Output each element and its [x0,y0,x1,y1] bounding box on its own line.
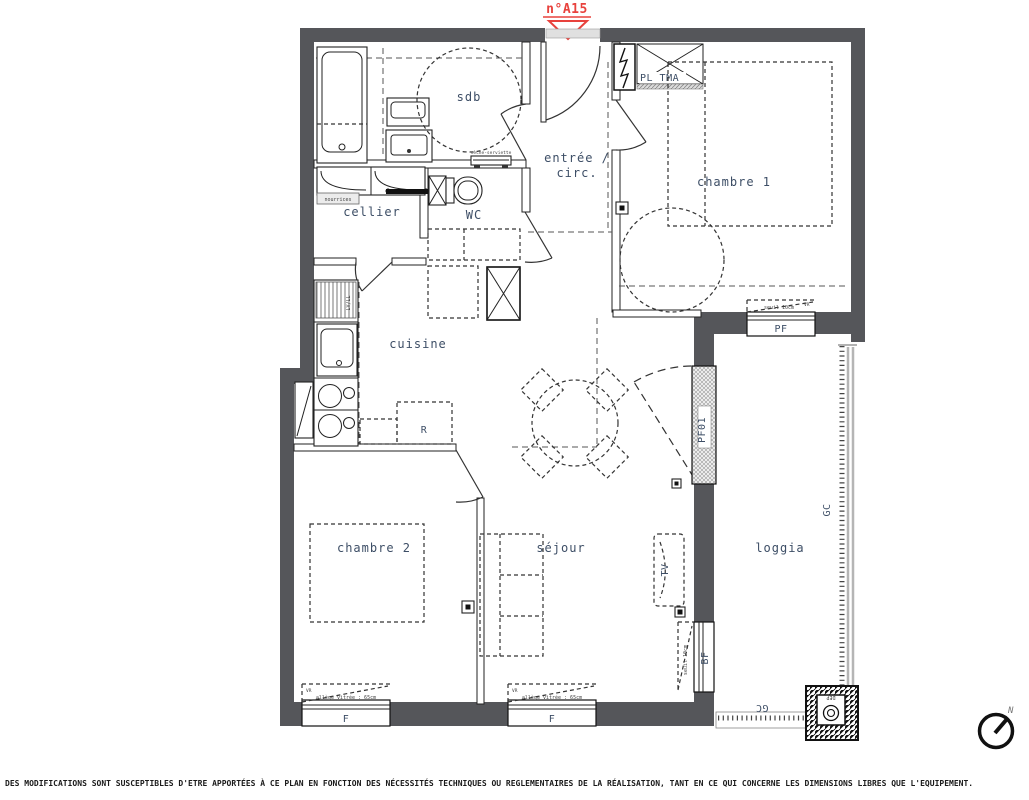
window-f1-label: F [343,714,350,725]
allege-f2-label: allège vitrée : 65cm [522,694,582,701]
outer-walls [280,28,865,726]
room-label-wc: WC [466,208,482,222]
disclaimer-text: DES MODIFICATIONS SONT SUSCEPTIBLES D'ET… [5,756,1025,800]
room-label-cellier: cellier [343,205,401,219]
water-heater [295,382,313,438]
duct-shaft [487,267,520,320]
towel-radiator: sèche-serviette [471,149,512,168]
seche-serviette-label: sèche-serviette [471,149,512,156]
vr-f1-label: VR [306,688,312,694]
sofa [480,534,543,656]
bf-label: BF [700,651,711,664]
seuil-bf-label: seuil 10cm [683,645,689,675]
window-f2-label: F [549,714,556,725]
allege-f1-label: allège vitrée : 65cm [316,694,376,701]
gc-bottom-label: GC [755,702,768,713]
refrigerator-label: R [421,425,428,436]
dep-label: DEP [826,694,835,700]
compass: N [980,706,1015,748]
bathtub [317,47,367,163]
room-label-entree-1: entrée / [544,151,610,165]
bathroom-fixtures: sèche-serviette [317,47,521,168]
compass-north-label: N [1007,706,1014,716]
seuil-pf-label: seuil 10cm [764,305,794,311]
compass-needle-icon [995,719,1007,733]
floorplan-svg: n°A15 [0,0,1029,755]
room-label-sejour: séjour [536,541,585,555]
room-label-chambre2: chambre 2 [337,541,411,555]
vr-f2-label: VR [512,688,518,694]
gc-right-label: GC [822,503,833,516]
dep-box: DEP [806,686,858,740]
room-label-cuisine: cuisine [389,337,447,351]
wc-door [525,212,552,262]
room-label-loggia: loggia [755,541,804,555]
pl-tma-label: PL TMA [640,73,679,84]
tv-label: TV [660,563,671,576]
windows: F VR allège vitrée : 65cm F VR allège vi… [302,300,815,726]
loggia-door [634,366,694,478]
tv-unit: TV [654,534,684,606]
wall-cabinet [387,98,429,126]
floorplan-page: n°A15 [0,0,1029,800]
kitchen-sink [317,324,357,376]
plan-number-label: n°A15 [546,2,588,17]
room-label-entree-2: circ. [556,166,597,180]
dining-table [521,369,628,478]
window-f2: F VR allège vitrée : 65cm [508,684,596,726]
refrigerator: R [397,402,452,444]
window-pf01: PF01 [692,366,716,484]
pl-tma-closet: PL TMA [614,44,703,90]
window-f1: F VR allège vitrée : 65cm [302,684,390,726]
lv-ll-label: LV/LL [346,295,352,310]
chambre1-door [616,100,646,150]
window-pf: PF VR seuil 10cm [747,300,815,336]
pf01-label: PF01 [697,417,708,443]
entrance-door [541,29,600,122]
room-label-sdb: sdb [457,90,482,104]
room-label-chambre1: chambre 1 [697,175,771,189]
nourrices-label: nourrices [324,197,351,203]
vr-pf-label: VR [804,302,810,308]
turning-circle-chambre1 [620,208,724,312]
bed-chambre2 [310,524,424,622]
washbasin [386,130,432,162]
pf-label: PF [774,324,787,335]
nourrices-box: nourrices [317,193,359,204]
cellier-door [355,262,392,291]
kitchen-fixtures: LV/LL R [314,267,520,446]
chambre2-door [456,450,483,502]
disclaimer-line-1: DES MODIFICATIONS SONT SUSCEPTIBLES D'ET… [5,778,1025,789]
worktop-ghost [360,419,397,444]
window-bf: BF seuil 10cm [678,622,714,692]
